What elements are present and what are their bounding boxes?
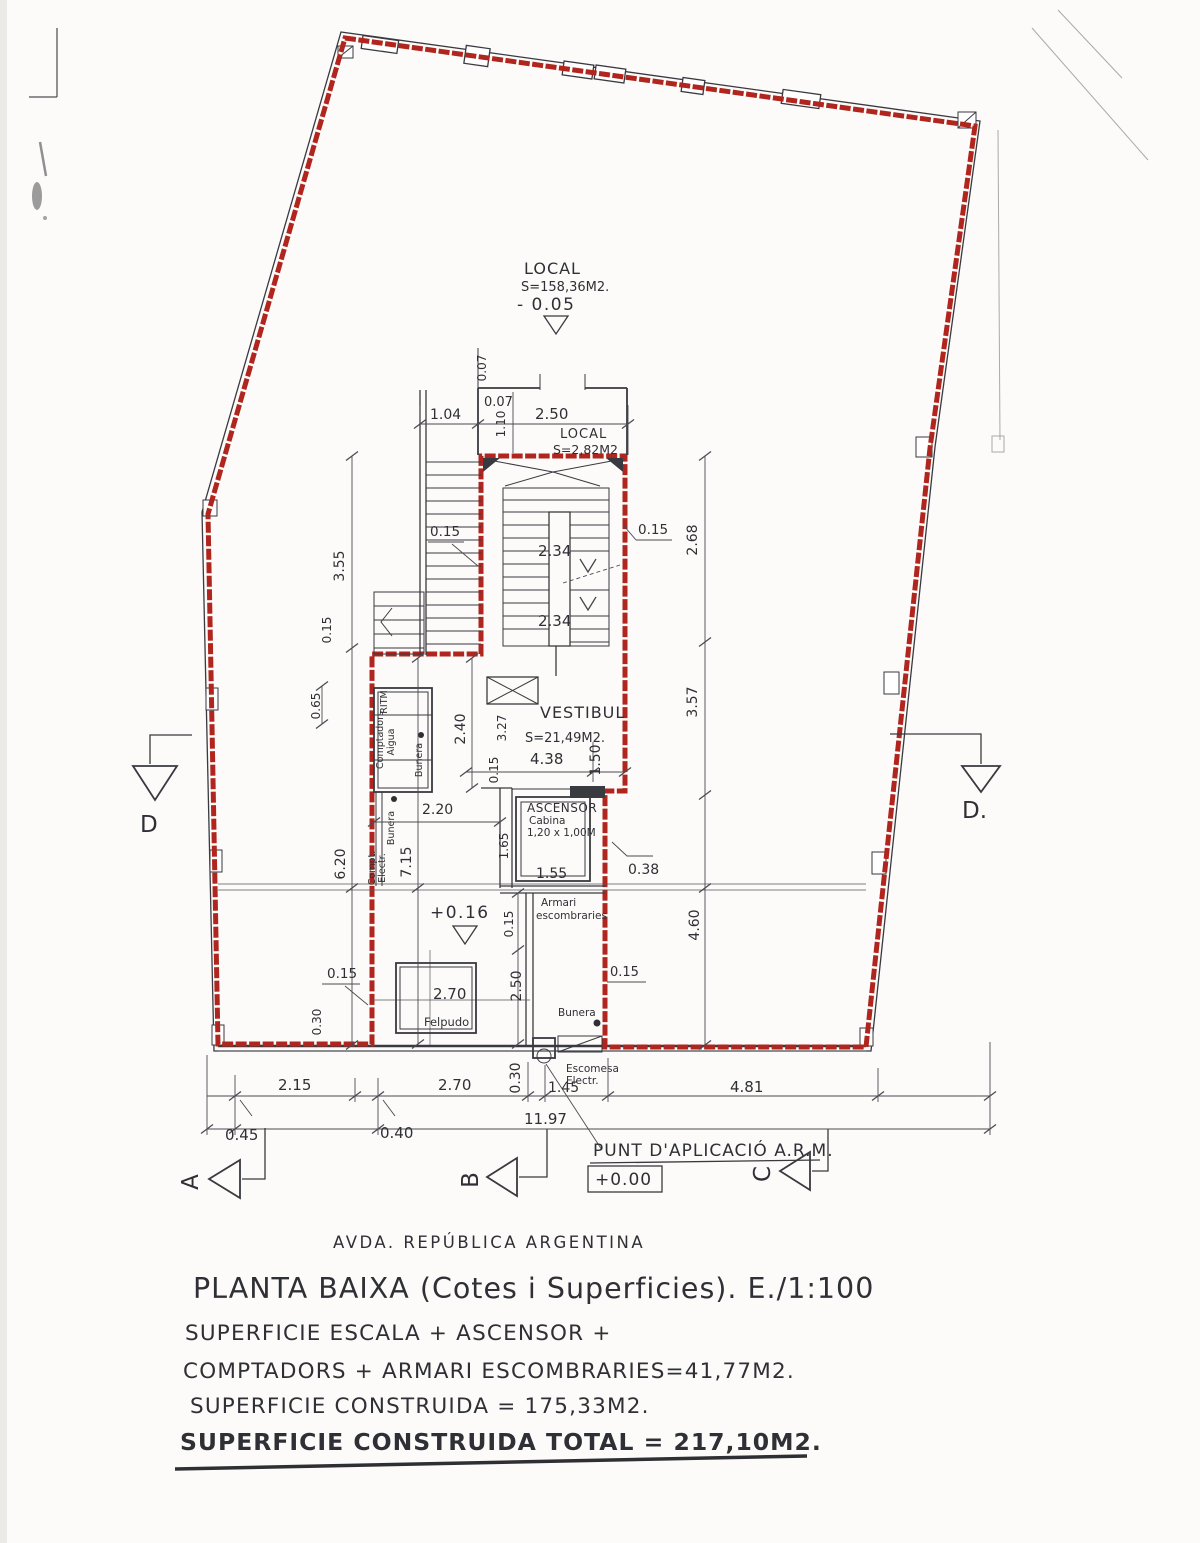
arm-point-level: +0.00 (595, 1170, 652, 1190)
drain-dot-c (594, 1020, 601, 1027)
elevator-cab-label: Cabina (529, 815, 565, 827)
dim-2-70-bottom: 2.70 (438, 1076, 471, 1094)
site-boundary (202, 32, 980, 1051)
dim-0-45: 0.45 (225, 1126, 258, 1144)
section-b-label: B (458, 1172, 484, 1188)
built-surface-red-outline (208, 38, 975, 1047)
elevator-cab-size: 1,20 x 1,00M (527, 827, 596, 839)
local-main-area: S=158,36M2. (521, 280, 609, 295)
dim-0-15-vestibule: 0.15 (487, 757, 501, 784)
dim-0-30-bottom: 0.30 (508, 1062, 524, 1093)
vestibule-area: VESTIBUL S=21,49M2. 3.27 (487, 677, 625, 746)
scan-artifacts (0, 0, 1148, 1543)
local-stair (426, 462, 481, 644)
dim-1-50: 1.50 (588, 744, 604, 775)
drain-a-label: Bunera (414, 743, 425, 777)
dim-3-27: 3.27 (495, 715, 509, 742)
dim-2-68: 2.68 (685, 524, 701, 555)
dim-1-10: 1.10 (494, 411, 508, 438)
dim-0-38: 0.38 (628, 862, 659, 878)
electric-meter-label-2: Electr. (377, 853, 388, 883)
dim-0-15-stair-left: 0.15 (430, 524, 460, 540)
dim-0-15-left: 0.15 (320, 617, 334, 644)
core-staircase (483, 458, 623, 676)
corner-piers (203, 46, 976, 1046)
trash-label-2: escombraries (536, 910, 607, 922)
dim-0-07-v: 0.07 (475, 355, 489, 382)
elevator: ASCENSOR Cabina 1,20 x 1,00M 1.65 1.55 0… (481, 786, 659, 893)
dim-11-97: 11.97 (524, 1110, 567, 1128)
drain-dot-b (391, 796, 397, 802)
surface-line-2: COMPTADORS + ARMARI ESCOMBRARIES=41,77M2… (183, 1359, 795, 1384)
dim-4-81: 4.81 (730, 1078, 763, 1096)
dim-0-65: 0.65 (309, 693, 323, 720)
dim-0-07-h: 0.07 (484, 395, 513, 410)
dim-1-04: 1.04 (430, 407, 461, 423)
section-d-right-label: D. (962, 798, 987, 824)
dim-0-15-right-porch: 0.15 (610, 965, 639, 980)
scanned-floor-plan-page: VESTIBUL S=21,49M2. 3.27 RITM Comptadors… (0, 0, 1200, 1543)
street-name: AVDA. REPÚBLICA ARGENTINA (333, 1233, 645, 1252)
total-underline (175, 1456, 807, 1469)
title-block: AVDA. REPÚBLICA ARGENTINA PLANTA BAIXA (… (175, 1233, 874, 1469)
level-triangle-local (544, 316, 568, 334)
section-a-label: A (178, 1174, 204, 1190)
ritm-label: RITM (379, 690, 390, 713)
section-b-triangle (487, 1158, 517, 1196)
local-small-name: LOCAL (560, 427, 607, 442)
dim-7-15: 7.15 (399, 846, 415, 877)
surface-line-1: SUPERFICIE ESCALA + ASCENSOR + (185, 1321, 612, 1346)
arm-point-label: PUNT D'APLICACIÓ A.R.M. (593, 1139, 834, 1161)
room-titles: LOCAL S=158,36M2. - 0.05 LOCAL S=2,82M2 (517, 259, 618, 457)
section-d-left-label: D (140, 812, 158, 838)
dim-1-45: 1.45 (548, 1080, 579, 1096)
section-c-label: C (750, 1166, 776, 1182)
dim-2-70-doormat: 2.70 (433, 985, 466, 1003)
dim-0-15-porch: 0.15 (502, 911, 516, 938)
extension-lines (207, 1042, 990, 1135)
local-main-level: - 0.05 (517, 295, 575, 315)
water-meters-label-2: Aigua (386, 728, 397, 755)
dim-2-50-top: 2.50 (535, 405, 568, 423)
dim-2-34-b: 2.34 (538, 612, 571, 630)
dim-1-65: 1.65 (497, 833, 511, 860)
dim-2-20: 2.20 (422, 802, 453, 818)
dim-6-20: 6.20 (333, 848, 349, 879)
trash-label-1: Armari (541, 897, 576, 909)
floor-plan-drawing: VESTIBUL S=21,49M2. 3.27 RITM Comptadors… (0, 0, 1200, 1543)
dimension-lines: 1.04 2.50 0.07 0.07 1.10 0.15 0.15 2.34 … (309, 355, 711, 1050)
local-small-area: S=2,82M2 (553, 442, 618, 457)
dim-2-34-a: 2.34 (538, 542, 571, 560)
bottom-dimension-rows: 2.15 2.70 0.30 1.45 4.81 0.45 0.40 11.97 (201, 1042, 996, 1144)
dim-2-15-bottom: 2.15 (278, 1076, 311, 1094)
dim-0-15-stair-right: 0.15 (638, 522, 668, 538)
drawing-title: PLANTA BAIXA (Cotes i Superficies). E./1… (193, 1272, 874, 1305)
entry-level: +0.16 (430, 903, 490, 923)
dim-0-30-left: 0.30 (310, 1009, 324, 1036)
service-entry-label-1: Escomesa (566, 1063, 619, 1075)
section-d-left-triangle (133, 766, 177, 800)
dim-0-15-bottom-left: 0.15 (327, 966, 357, 982)
dim-0-40: 0.40 (380, 1124, 413, 1142)
entrance-steps (374, 592, 424, 654)
dim-3-57: 3.57 (685, 686, 701, 717)
entrance-porch: 2.70 Felpudo +0.16 Bunera Escomesa Elect… (372, 903, 619, 1150)
section-a-triangle (209, 1160, 240, 1198)
dim-4-38: 4.38 (530, 750, 563, 768)
water-meters-label-1: Comptadors (375, 711, 386, 769)
vestibule-name: VESTIBUL (540, 703, 625, 722)
section-d-right-triangle (962, 766, 1000, 792)
drain-b-label: Bunera (558, 1007, 596, 1019)
elevator-name: ASCENSOR (527, 801, 597, 815)
electric-meter-drain: Bunera (386, 811, 397, 845)
local-main-name: LOCAL (524, 259, 581, 278)
arm-application-point: PUNT D'APLICACIÓ A.R.M. +0.00 (588, 1139, 834, 1192)
doormat-label: Felpudo (424, 1015, 469, 1029)
drain-dot-a (418, 732, 424, 738)
dim-3-55: 3.55 (332, 550, 348, 581)
surface-total-line: SUPERFICIE CONSTRUIDA TOTAL = 217,10M2. (180, 1428, 822, 1456)
level-triangle-entry (453, 926, 477, 944)
dim-2-40: 2.40 (453, 713, 469, 744)
dim-2-50-porch: 2.50 (509, 970, 525, 1001)
surface-line-3: SUPERFICIE CONSTRUIDA = 175,33M2. (190, 1394, 650, 1419)
dim-4-60: 4.60 (687, 909, 703, 940)
dim-1-55: 1.55 (536, 866, 567, 882)
